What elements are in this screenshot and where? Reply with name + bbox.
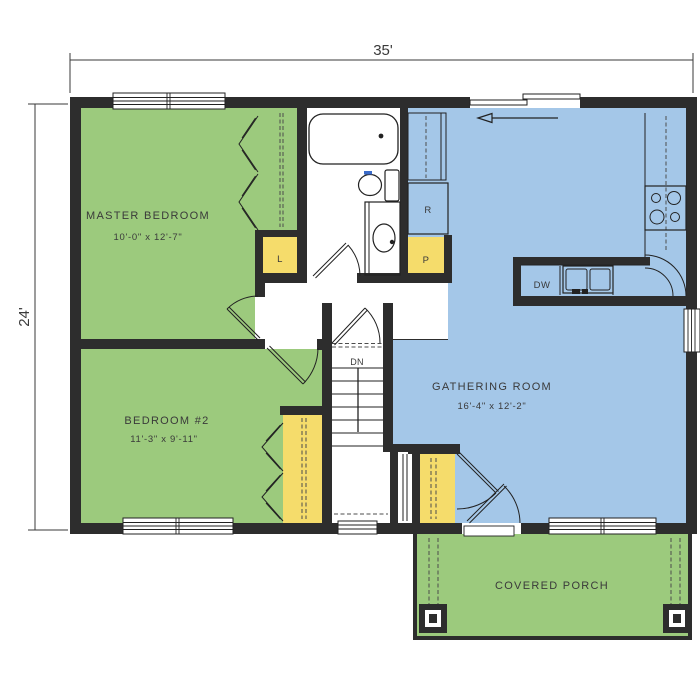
refrigerator-label: R <box>424 205 431 216</box>
stair-landing-floor <box>332 452 390 523</box>
master-bedroom-size: 10'-0" x 12'-7" <box>114 232 183 243</box>
master-bedroom-label: MASTER BEDROOM <box>86 210 210 222</box>
gathering-mid-floor <box>448 283 686 340</box>
master-closet-floor <box>255 108 297 230</box>
gathering-room-label: GATHERING ROOM <box>432 381 552 393</box>
railing-gap <box>398 452 412 523</box>
bathtub-drain <box>379 134 384 139</box>
porch-post-left <box>419 604 447 633</box>
floor-plan: 35' 24' <box>0 0 700 700</box>
bedroom2-window <box>123 518 233 534</box>
landing-window <box>338 521 377 534</box>
bedroom2-label: BEDROOM #2 <box>124 415 209 427</box>
gathering-room-size: 16'-4" x 12'-2" <box>458 401 527 412</box>
bedroom2-closet <box>283 414 322 523</box>
gathering-entry-floor <box>455 444 686 523</box>
porch-post-right <box>663 604 691 633</box>
hallway-floor <box>265 283 448 339</box>
linen-closet-label: L <box>277 254 283 265</box>
sliding-patio-door <box>470 94 580 108</box>
bathroom-floor <box>307 108 400 273</box>
covered-porch-label: COVERED PORCH <box>495 580 609 592</box>
pantry-label: P <box>423 255 430 266</box>
master-bedroom-window <box>113 93 225 109</box>
master-bedroom-floor <box>81 108 255 339</box>
gathering-room-window <box>549 518 656 534</box>
depth-dimension-label: 24' <box>16 307 33 327</box>
bedroom2-size: 11'-3" x 9'-11" <box>130 434 198 445</box>
stairs-down-label: DN <box>350 357 364 367</box>
right-wall-window <box>684 309 700 352</box>
depth-dimension-line <box>28 104 68 530</box>
width-dimension-line <box>70 53 693 93</box>
floor-plan-canvas: 35' 24' <box>0 0 700 700</box>
coat-closet <box>420 454 455 523</box>
width-dimension-label: 35' <box>373 42 393 59</box>
dishwasher-label: DW <box>534 280 551 291</box>
